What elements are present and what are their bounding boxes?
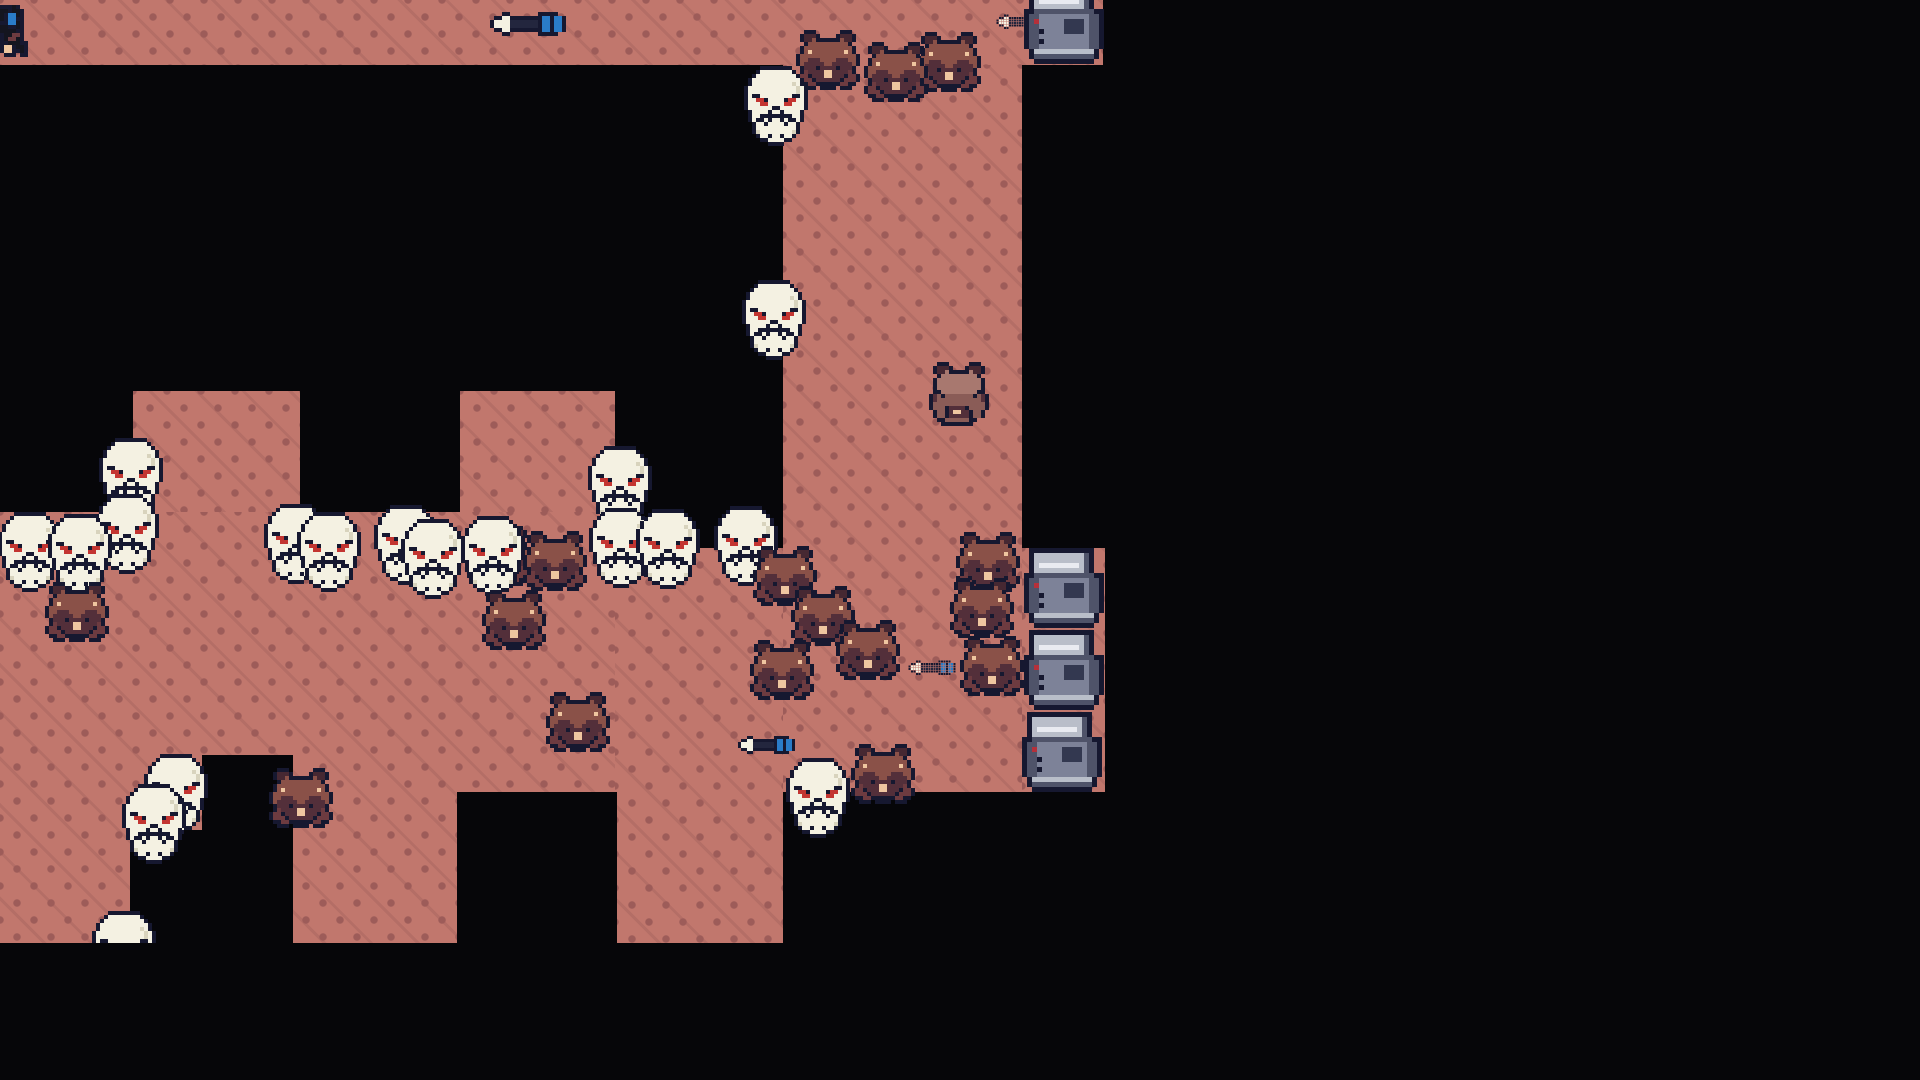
skull-sprite bbox=[738, 276, 742, 280]
bear-enemy[interactable] bbox=[269, 768, 333, 828]
bearback-sprite bbox=[925, 358, 929, 362]
skull-enemy[interactable] bbox=[461, 516, 525, 596]
metal-crate[interactable] bbox=[1024, 630, 1104, 710]
skull-enemy[interactable] bbox=[742, 280, 806, 360]
bear-facing-away[interactable] bbox=[929, 362, 989, 426]
bear-sprite bbox=[913, 28, 917, 32]
skull-sprite bbox=[457, 512, 461, 516]
metal-crate[interactable] bbox=[1024, 548, 1104, 628]
bear-enemy[interactable] bbox=[960, 636, 1024, 696]
skull-sprite bbox=[782, 754, 786, 758]
bear-sprite bbox=[787, 582, 791, 586]
bear-enemy[interactable] bbox=[864, 42, 928, 102]
skull-sprite bbox=[584, 442, 588, 446]
arrow-sprite bbox=[486, 8, 490, 12]
bear-enemy[interactable] bbox=[546, 692, 610, 752]
skull-sprite bbox=[585, 504, 589, 508]
skull-enemy[interactable] bbox=[401, 519, 465, 599]
metal-crate[interactable] bbox=[1022, 712, 1102, 792]
bear-sprite bbox=[952, 528, 956, 532]
bear-sprite bbox=[749, 542, 753, 546]
arrow-sprite bbox=[994, 12, 997, 15]
crate-sprite bbox=[1017, 707, 1022, 712]
dropped-items[interactable] bbox=[0, 5, 36, 61]
metal-crate[interactable] bbox=[1024, 0, 1104, 64]
bear-enemy[interactable] bbox=[836, 620, 900, 680]
skull-sprite bbox=[44, 510, 48, 514]
arrow-item[interactable] bbox=[490, 12, 566, 36]
arrow-sprite bbox=[906, 658, 909, 661]
skull-sprite bbox=[118, 780, 122, 784]
bear-sprite bbox=[946, 574, 950, 578]
arrow-item[interactable] bbox=[908, 660, 956, 675]
skull-sprite bbox=[95, 434, 99, 438]
bear-enemy[interactable] bbox=[523, 531, 587, 591]
skull-sprite bbox=[140, 750, 144, 754]
arrow-item[interactable] bbox=[738, 736, 795, 754]
skull-enemy[interactable] bbox=[636, 509, 700, 589]
bear-sprite bbox=[847, 740, 851, 744]
skull-sprite bbox=[397, 515, 401, 519]
skull-enemy[interactable] bbox=[297, 512, 361, 592]
bear-enemy[interactable] bbox=[45, 582, 109, 642]
bear-sprite bbox=[542, 688, 546, 692]
bear-sprite bbox=[265, 764, 269, 768]
skull-sprite bbox=[632, 505, 636, 509]
skull-sprite bbox=[710, 502, 714, 506]
game-viewport bbox=[0, 0, 1920, 1080]
bear-sprite bbox=[832, 616, 836, 620]
bear-sprite bbox=[746, 636, 750, 640]
crate-sprite bbox=[1019, 543, 1024, 548]
bear-enemy[interactable] bbox=[950, 578, 1014, 638]
skull-sprite bbox=[260, 500, 264, 504]
bear-enemy[interactable] bbox=[482, 590, 546, 650]
bear-sprite bbox=[478, 586, 482, 590]
darkness-notch-right bbox=[457, 792, 617, 943]
crate-sprite bbox=[1019, 625, 1024, 630]
bear-sprite bbox=[41, 578, 45, 582]
arrow-sprite bbox=[735, 733, 738, 736]
bear-sprite bbox=[956, 632, 960, 636]
skull-enemy[interactable] bbox=[744, 66, 808, 146]
bear-sprite bbox=[792, 26, 796, 30]
bear-sprite bbox=[860, 38, 864, 42]
skull-enemy[interactable] bbox=[786, 758, 850, 838]
bear-enemy[interactable] bbox=[750, 640, 814, 700]
skull-enemy[interactable] bbox=[92, 911, 156, 943]
bear-enemy[interactable] bbox=[851, 744, 915, 804]
skull-sprite bbox=[740, 62, 744, 66]
skull-sprite bbox=[91, 490, 95, 494]
skull-sprite bbox=[370, 501, 374, 505]
skull-enemy[interactable] bbox=[122, 784, 186, 864]
skull-sprite bbox=[293, 508, 297, 512]
